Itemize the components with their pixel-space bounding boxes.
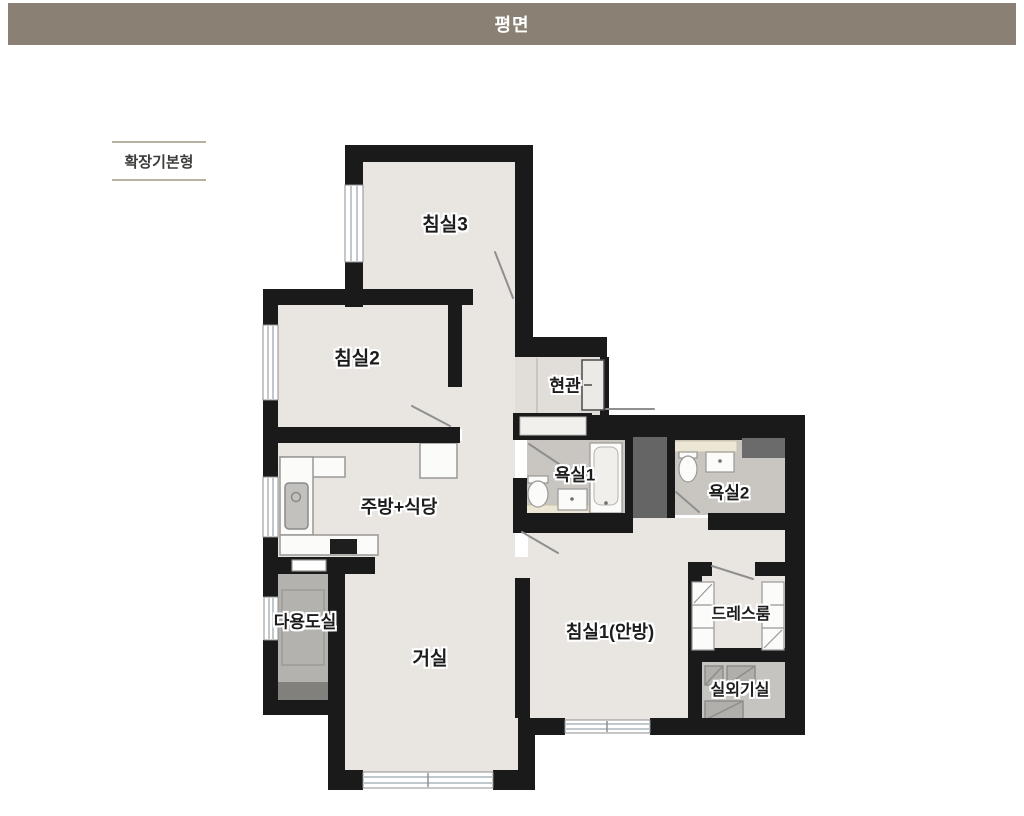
room-label-bath2: 욕실2 (709, 479, 750, 504)
room-label-bedroom1-master: 침실1(안방) (566, 618, 654, 644)
utility-door (292, 560, 326, 571)
room-label-bedroom2: 침실2 (334, 344, 380, 371)
room-label-dressroom: 드레스룸 (712, 600, 771, 624)
floor-plan-page: 평면 확장기본형 (0, 0, 1024, 816)
room-label-bedroom3: 침실3 (422, 210, 468, 237)
room-label-kitchen-dining: 주방+식당 (361, 493, 438, 519)
room-label-utility: 다용도실 (274, 608, 337, 633)
floor-plan-drawing (0, 0, 1024, 816)
room-label-entrance: 현관 (549, 372, 580, 397)
room-label-ac-room: 실외기실 (711, 676, 770, 700)
room-label-living: 거실 (413, 644, 448, 671)
room-label-bath1: 욕실1 (555, 461, 596, 486)
floor-plan: 침실3 침실2 현관 욕실1 욕실2 주방+식당 다용도실 거실 침실1(안방)… (0, 0, 1024, 816)
